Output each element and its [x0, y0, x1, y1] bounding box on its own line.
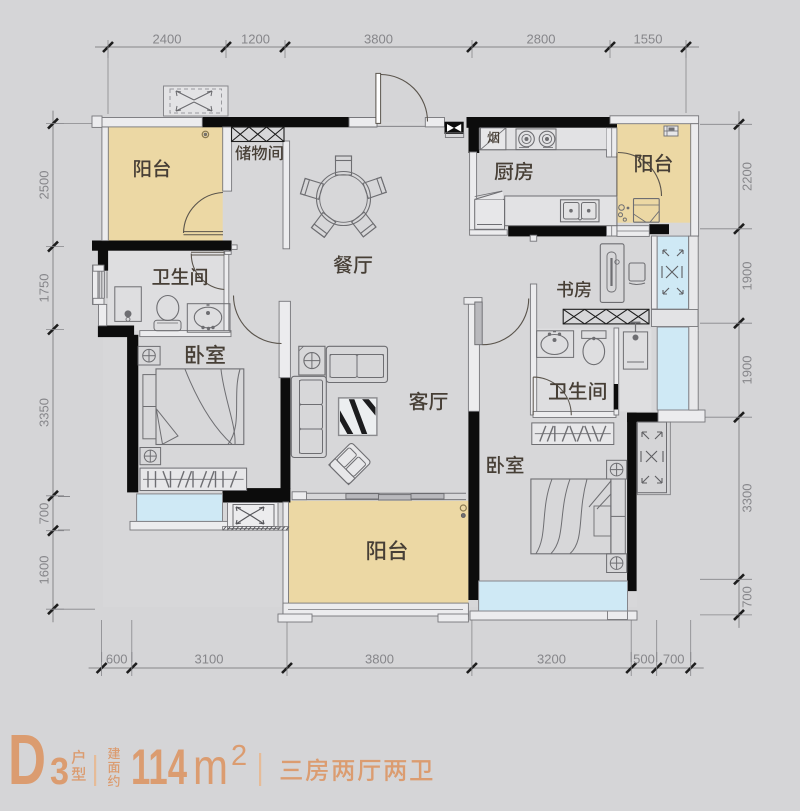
svg-text:114: 114	[131, 739, 187, 795]
svg-text:3: 3	[50, 751, 69, 793]
svg-text:700: 700	[663, 652, 685, 667]
svg-text:1900: 1900	[740, 262, 755, 291]
svg-text:D: D	[8, 721, 46, 800]
svg-text:2400: 2400	[153, 32, 182, 47]
svg-text:600: 600	[106, 652, 128, 667]
svg-text:2: 2	[231, 740, 247, 772]
svg-text:2200: 2200	[740, 162, 755, 191]
svg-text:3200: 3200	[537, 652, 566, 667]
svg-text:500: 500	[633, 652, 655, 667]
svg-text:2800: 2800	[527, 32, 556, 47]
svg-text:3100: 3100	[195, 652, 224, 667]
svg-text:3800: 3800	[364, 32, 393, 47]
svg-text:m: m	[193, 739, 228, 795]
svg-text:3300: 3300	[740, 484, 755, 513]
svg-text:1550: 1550	[634, 32, 663, 47]
svg-text:3350: 3350	[37, 398, 52, 427]
svg-text:2500: 2500	[37, 171, 52, 200]
svg-text:1900: 1900	[740, 356, 755, 385]
svg-text:1750: 1750	[37, 274, 52, 303]
svg-text:3800: 3800	[365, 652, 394, 667]
svg-text:700: 700	[740, 586, 755, 608]
svg-text:1600: 1600	[37, 556, 52, 585]
svg-text:700: 700	[37, 503, 52, 525]
svg-text:1200: 1200	[241, 32, 270, 47]
